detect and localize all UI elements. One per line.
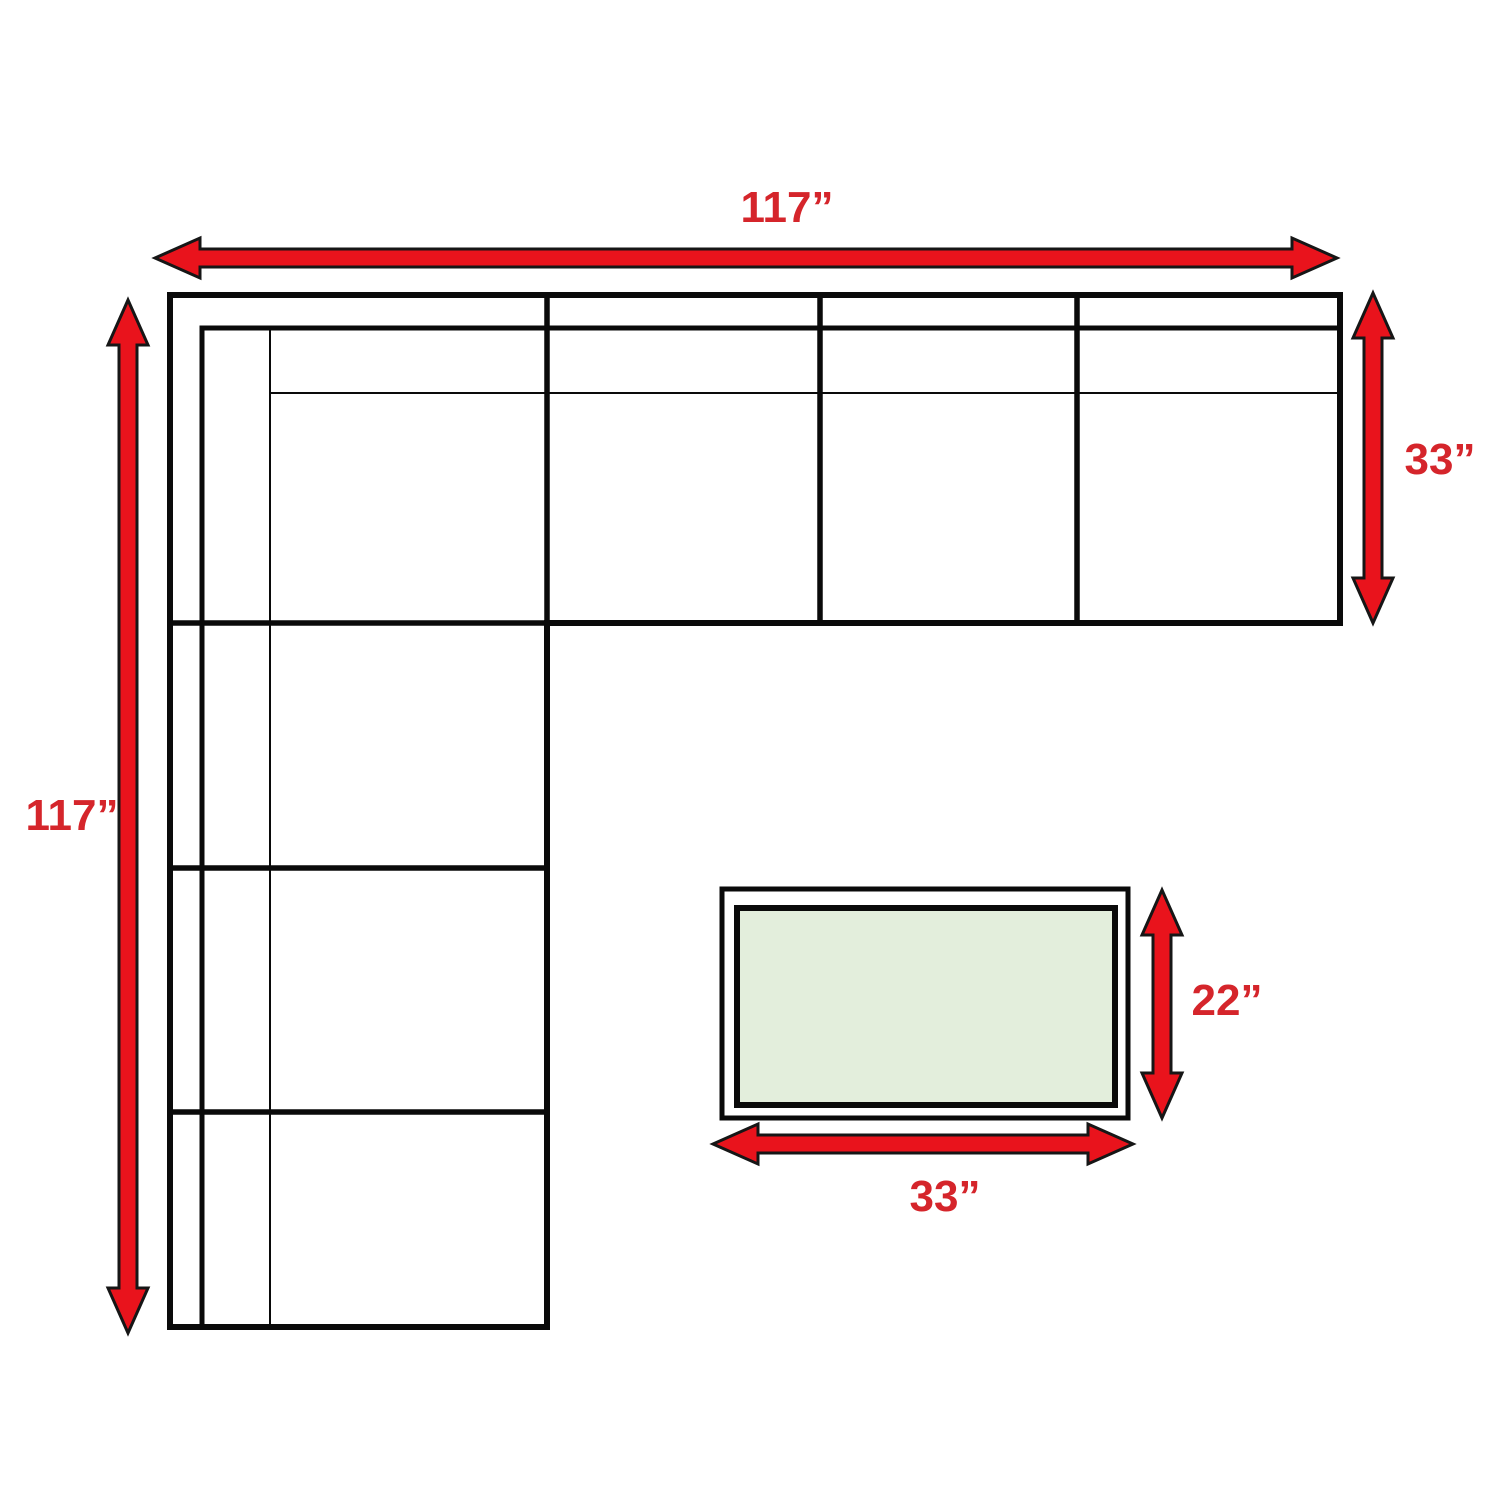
ottoman-width-label: 33” — [910, 1172, 981, 1221]
sofa-width-label: 117” — [741, 183, 834, 232]
sofa-height-label: 117” — [26, 791, 119, 840]
dimension-diagram: 117” 117” 33” 22” 33” — [0, 0, 1500, 1500]
sofa-back-inner-line — [202, 328, 1340, 1327]
sofa-width-arrow — [155, 238, 1337, 278]
ottoman — [722, 889, 1128, 1118]
ottoman-height-label: 22” — [1192, 976, 1263, 1025]
diagram-canvas: 117” 117” 33” 22” 33” — [0, 0, 1500, 1500]
sofa-seat-cushion-thin-lines — [270, 330, 1340, 1327]
ottoman-width-arrow — [713, 1124, 1133, 1164]
sofa-outline — [170, 295, 1340, 1327]
ottoman-height-arrow — [1142, 890, 1182, 1118]
dimension-arrows — [108, 238, 1393, 1333]
ottoman-inner-rect — [737, 908, 1115, 1105]
sofa-depth-label: 33” — [1405, 435, 1476, 484]
sofa-depth-arrow — [1353, 293, 1393, 623]
sectional-sofa — [170, 295, 1340, 1327]
